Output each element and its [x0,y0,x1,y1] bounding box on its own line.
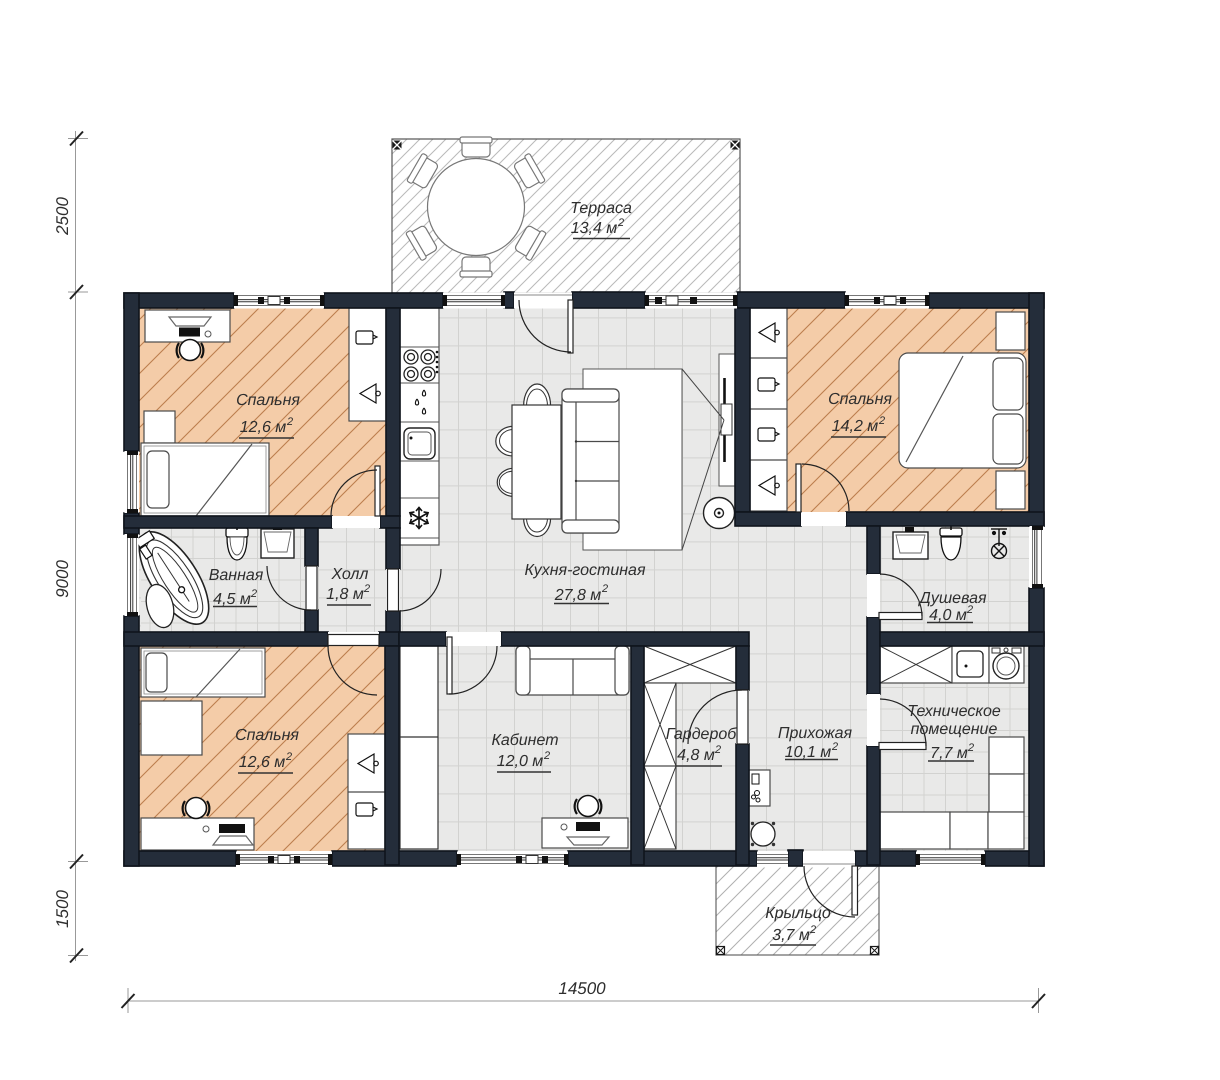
svg-text:Крыльцо: Крыльцо [765,905,831,922]
svg-text:2: 2 [250,588,257,600]
svg-text:Прихожая: Прихожая [778,725,853,742]
svg-text:10,1 м: 10,1 м [785,744,832,761]
svg-text:2: 2 [967,742,974,754]
svg-text:Гардероб: Гардероб [666,726,738,743]
svg-text:2: 2 [617,217,624,229]
svg-text:1,8 м: 1,8 м [326,586,364,603]
svg-text:7,7 м: 7,7 м [930,745,968,762]
svg-text:2: 2 [601,583,608,595]
svg-text:Кухня-гостиная: Кухня-гостиная [524,562,645,579]
svg-text:2: 2 [966,604,973,616]
svg-text:4,8 м: 4,8 м [677,747,715,764]
svg-text:Ванная: Ванная [209,567,264,584]
svg-text:1500: 1500 [53,890,72,928]
svg-text:12,0 м: 12,0 м [497,753,544,770]
svg-text:4,5 м: 4,5 м [213,591,251,608]
svg-text:Терраса: Терраса [570,200,632,217]
svg-text:Спальня: Спальня [236,392,300,409]
svg-text:12,6 м: 12,6 м [240,419,287,436]
svg-text:2: 2 [809,924,816,936]
svg-text:2: 2 [831,741,838,753]
svg-text:Техническое: Техническое [907,703,1001,720]
svg-text:Кабинет: Кабинет [491,732,558,749]
svg-text:2: 2 [363,583,370,595]
svg-text:12,6 м: 12,6 м [239,754,286,771]
svg-text:9000: 9000 [53,560,72,598]
svg-text:13,4 м: 13,4 м [571,220,618,237]
svg-text:27,8 м: 27,8 м [554,587,602,604]
svg-text:2500: 2500 [53,197,72,236]
svg-text:2: 2 [714,744,721,756]
svg-text:Душевая: Душевая [917,590,987,607]
svg-text:4,0 м: 4,0 м [929,607,967,624]
svg-text:Холл: Холл [331,566,369,583]
svg-text:помещение: помещение [911,721,998,738]
svg-text:2: 2 [878,415,885,427]
svg-text:2: 2 [285,751,292,763]
svg-text:2: 2 [286,416,293,428]
svg-text:3,7 м: 3,7 м [772,927,810,944]
svg-text:2: 2 [543,750,550,762]
svg-text:14,2 м: 14,2 м [832,418,879,435]
svg-text:Спальня: Спальня [235,727,299,744]
svg-text:Спальня: Спальня [828,391,892,408]
svg-text:14500: 14500 [558,979,606,998]
